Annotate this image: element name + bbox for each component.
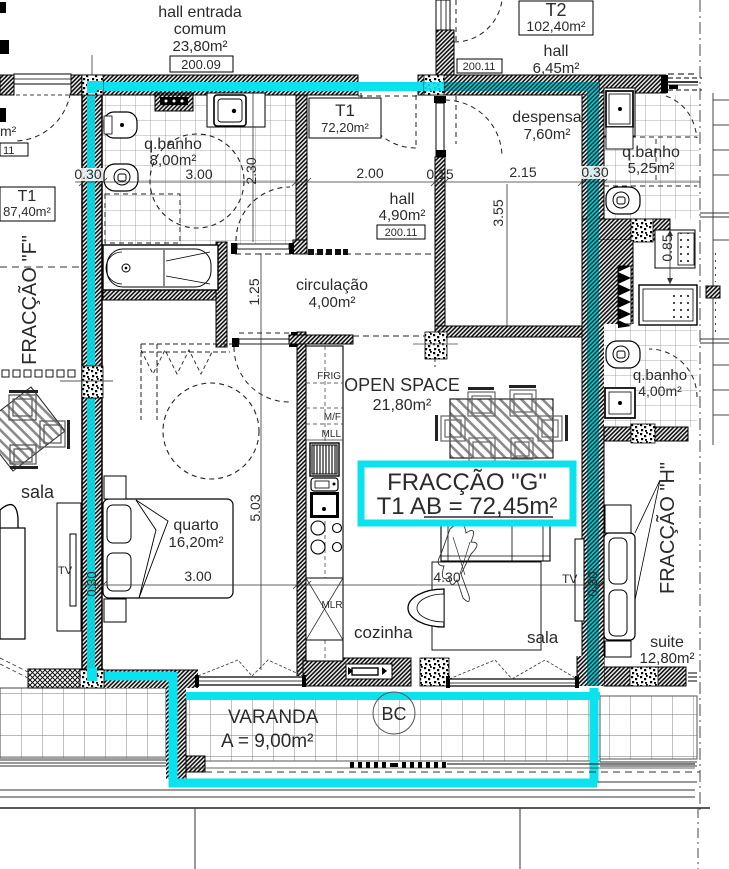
svg-text:4,00m²: 4,00m² xyxy=(309,294,356,311)
svg-text:TV: TV xyxy=(562,572,577,586)
svg-text:21,80m²: 21,80m² xyxy=(373,397,432,414)
svg-text:comum: comum xyxy=(174,21,226,38)
svg-text:FRIG: FRIG xyxy=(317,371,341,382)
svg-text:q.banho: q.banho xyxy=(622,144,680,161)
svg-text:hall: hall xyxy=(390,191,415,208)
svg-text:suite: suite xyxy=(650,634,684,651)
svg-text:3.00: 3.00 xyxy=(185,166,212,182)
svg-text:0.30: 0.30 xyxy=(84,571,99,596)
svg-text:T1 AB = 72,45m²: T1 AB = 72,45m² xyxy=(377,493,558,520)
svg-text:TV: TV xyxy=(58,565,73,577)
svg-text:4,90m²: 4,90m² xyxy=(379,207,426,224)
svg-text:1.25: 1.25 xyxy=(246,278,262,305)
svg-text:m²: m² xyxy=(0,123,17,139)
svg-text:A = 9,00m²: A = 9,00m² xyxy=(221,731,313,752)
svg-text:200.09: 200.09 xyxy=(181,57,221,72)
svg-text:0.30: 0.30 xyxy=(585,571,600,596)
svg-text:T2: T2 xyxy=(545,0,566,20)
svg-text:T1: T1 xyxy=(18,188,37,205)
svg-text:hall: hall xyxy=(544,43,569,60)
svg-text:BC: BC xyxy=(381,704,406,724)
svg-text:MLL: MLL xyxy=(322,429,342,440)
svg-text:200.11: 200.11 xyxy=(463,61,496,73)
svg-text:0.15: 0.15 xyxy=(426,166,453,182)
svg-text:7,60m²: 7,60m² xyxy=(524,126,571,143)
svg-text:4.30: 4.30 xyxy=(433,569,460,585)
svg-text:0.30: 0.30 xyxy=(74,166,101,182)
svg-text:T1: T1 xyxy=(335,101,355,120)
svg-text:hall entrada: hall entrada xyxy=(158,4,242,21)
svg-text:OPEN SPACE: OPEN SPACE xyxy=(344,375,460,395)
svg-text:102,40m²: 102,40m² xyxy=(526,18,585,34)
svg-text:3.00: 3.00 xyxy=(184,568,211,584)
svg-text:12,80m²: 12,80m² xyxy=(639,650,694,667)
svg-text:72,20m²: 72,20m² xyxy=(321,120,369,135)
svg-text:4,00m²: 4,00m² xyxy=(638,383,682,399)
svg-text:q.banho: q.banho xyxy=(633,367,687,384)
svg-text:6,45m²: 6,45m² xyxy=(533,60,580,77)
svg-text:200.11: 200.11 xyxy=(385,227,418,239)
svg-text:FRACÇÃO "G": FRACÇÃO "G" xyxy=(387,469,547,496)
svg-text:87,40m²: 87,40m² xyxy=(3,204,51,219)
svg-text:23,80m²: 23,80m² xyxy=(172,38,227,55)
svg-text:quarto: quarto xyxy=(173,517,218,534)
svg-text:despensa: despensa xyxy=(512,109,581,126)
svg-text:5.03: 5.03 xyxy=(247,494,263,521)
svg-text:sala: sala xyxy=(527,628,559,647)
svg-text:FRACÇÃO "F": FRACÇÃO "F" xyxy=(17,235,41,365)
svg-text:FRACÇÃO "H": FRACÇÃO "H" xyxy=(655,462,679,594)
svg-text:q.banho: q.banho xyxy=(144,136,202,153)
svg-text:VARANDA: VARANDA xyxy=(228,707,319,728)
svg-text:sala: sala xyxy=(21,482,55,502)
svg-text:2.00: 2.00 xyxy=(356,165,383,181)
svg-text:11: 11 xyxy=(3,145,14,157)
svg-text:cozinha: cozinha xyxy=(354,623,413,642)
svg-text:MLR: MLR xyxy=(321,600,342,611)
svg-text:M/F: M/F xyxy=(324,412,341,423)
svg-text:16,20m²: 16,20m² xyxy=(168,534,223,551)
svg-text:0.30: 0.30 xyxy=(581,164,608,180)
svg-text:5,25m²: 5,25m² xyxy=(628,160,675,177)
svg-text:0.85: 0.85 xyxy=(659,234,675,261)
svg-text:2.15: 2.15 xyxy=(509,164,536,180)
svg-text:3.55: 3.55 xyxy=(490,199,506,226)
svg-text:2.30: 2.30 xyxy=(243,157,259,184)
svg-text:circulação: circulação xyxy=(296,277,368,294)
